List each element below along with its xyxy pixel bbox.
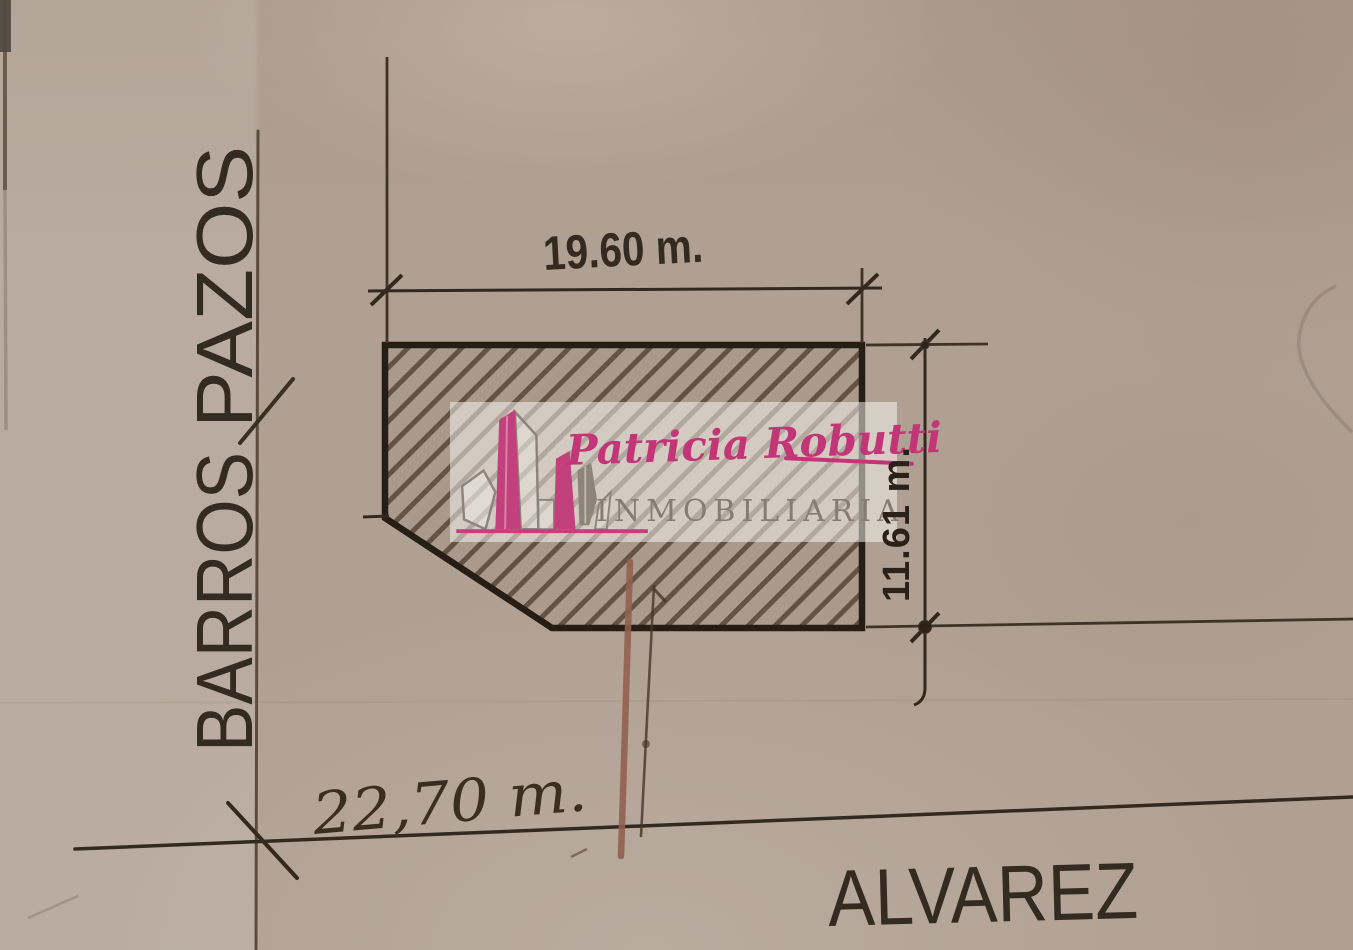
pen-blot — [642, 740, 650, 748]
street-line-alvarez — [75, 797, 1353, 849]
dimension-top — [368, 57, 882, 343]
tick-dot — [921, 341, 929, 349]
agency-subtitle: INMOBILIARIA — [596, 494, 905, 529]
dimension-line — [368, 288, 882, 291]
dimension-right — [866, 330, 1353, 705]
dimension-top-label: 19.60 m. — [542, 220, 705, 281]
dimension-bottom-label: 22,70 m. — [309, 756, 590, 848]
tick-dot — [919, 621, 932, 634]
chamfer-tick — [363, 516, 389, 517]
agency-watermark: Patricia Robutti INMOBILIARIA — [450, 402, 897, 542]
street-label-alvarez: ALVAREZ — [827, 846, 1139, 943]
dimension-right-label: 11.61 m. — [874, 387, 920, 602]
extension-line-bottom-long — [866, 619, 1353, 627]
scanned-plan-page: 19.60 m. BARROS PAZOS ALVAREZ 22,70 m. — [0, 0, 1353, 950]
pen-scribble-curve — [1299, 286, 1352, 432]
street-label-barros: BARROS — [180, 452, 269, 752]
street-label-pazos: PAZOS — [180, 146, 269, 428]
